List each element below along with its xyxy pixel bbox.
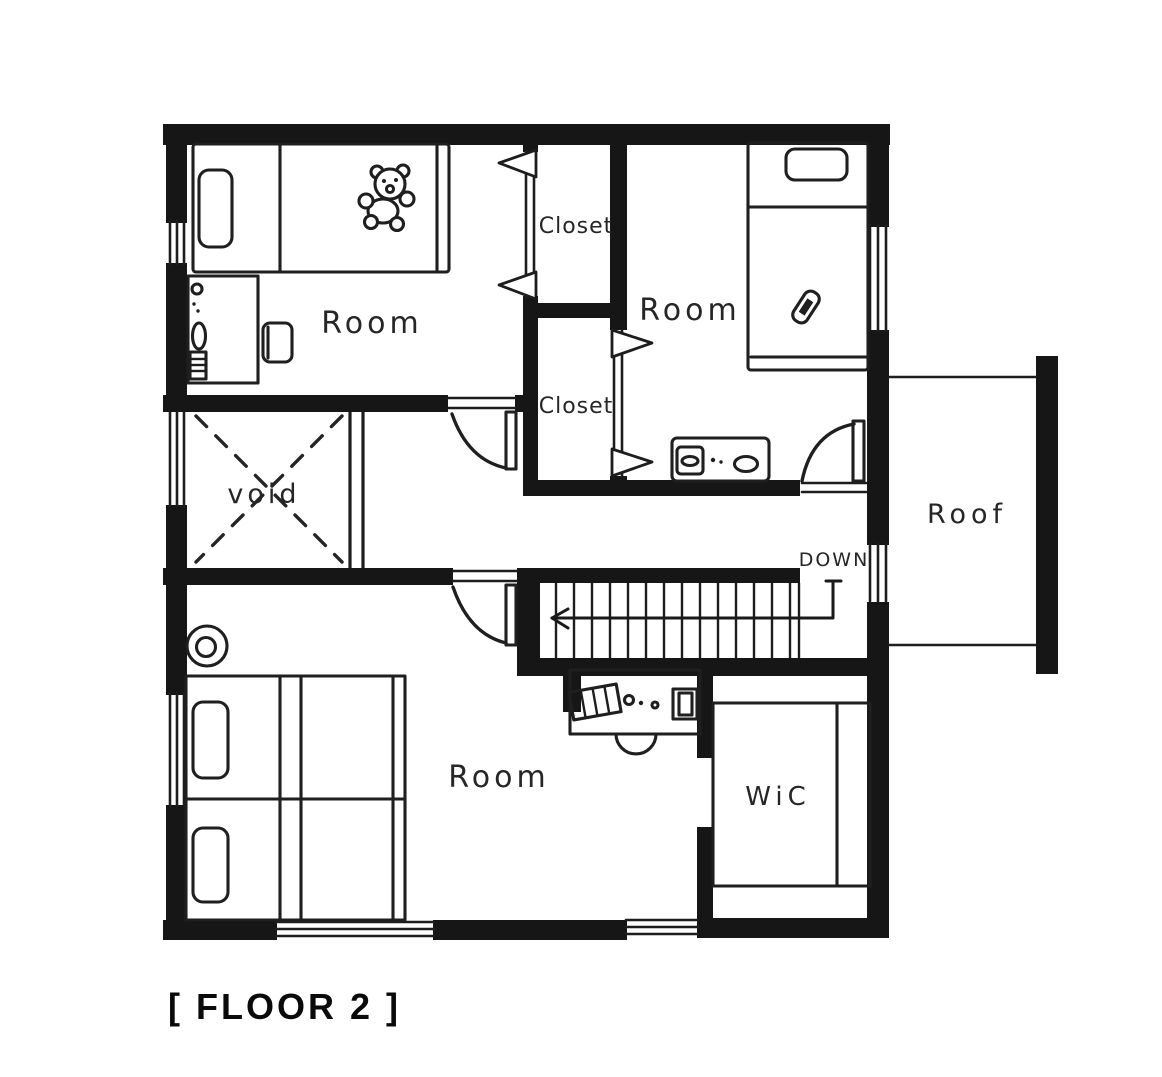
phone-icon bbox=[790, 288, 822, 325]
window-icon bbox=[276, 922, 434, 936]
door-icon-room-top-right bbox=[802, 421, 866, 492]
window-icon bbox=[170, 693, 184, 806]
window-icon bbox=[870, 225, 886, 331]
pillow-icon bbox=[193, 702, 228, 778]
window-icon bbox=[626, 920, 698, 934]
stairs-icon bbox=[552, 581, 841, 658]
door-icon-room-top-left bbox=[448, 398, 516, 469]
pillow-icon bbox=[193, 828, 228, 902]
wall-right bbox=[867, 124, 889, 227]
floor-title: [ FLOOR 2 ] bbox=[168, 986, 401, 1028]
furniture-room-bottom bbox=[186, 626, 700, 920]
window-icon bbox=[870, 544, 886, 601]
pillow-icon bbox=[786, 149, 847, 180]
wall-closet2-left bbox=[523, 318, 538, 492]
wall-left bbox=[166, 805, 187, 940]
floor-plan-drawing: Room Room Room Closet Closet void Roof W… bbox=[0, 0, 1162, 1077]
void-label: void bbox=[227, 479, 300, 510]
wall-wic-west bbox=[697, 827, 713, 938]
bed-icon bbox=[748, 143, 868, 370]
roof-edge-bar bbox=[1036, 356, 1058, 674]
furniture-room-top-left bbox=[188, 144, 449, 383]
wall-hall-south bbox=[163, 568, 453, 585]
stairs-down-arrow bbox=[552, 581, 841, 628]
keyboard-icon bbox=[190, 352, 206, 379]
window-icon bbox=[170, 221, 184, 264]
wall-stairs-north bbox=[517, 568, 800, 583]
wall-closet-mid bbox=[523, 303, 627, 318]
door-icon-room-bottom bbox=[453, 571, 517, 645]
wall-left bbox=[166, 124, 187, 223]
wall-left bbox=[166, 505, 187, 695]
wall-right bbox=[867, 330, 889, 545]
wall-room1-south bbox=[163, 395, 448, 412]
bed-icon bbox=[193, 144, 449, 272]
room-bottom-label: Room bbox=[448, 760, 549, 795]
desk-icon bbox=[569, 670, 700, 754]
teddy-bear-icon bbox=[359, 165, 414, 231]
wall-left bbox=[166, 263, 187, 403]
closet-top-label: Closet bbox=[539, 214, 614, 239]
wic-label: WiC bbox=[745, 782, 811, 812]
wall-bottom bbox=[433, 920, 627, 940]
floor-plan-page: Room Room Room Closet Closet void Roof W… bbox=[0, 0, 1162, 1077]
room-top-left-label: Room bbox=[321, 306, 422, 341]
double-bed-icon bbox=[186, 676, 405, 920]
wall-stairs-south bbox=[517, 658, 889, 676]
downlight-icon bbox=[187, 626, 227, 666]
mouse-icon bbox=[193, 323, 206, 349]
wall-bottom bbox=[163, 920, 277, 940]
mouse-icon bbox=[625, 696, 634, 705]
roof-label: Roof bbox=[927, 499, 1007, 530]
void-railing bbox=[350, 412, 363, 568]
wall-stub bbox=[610, 318, 627, 330]
window-icon bbox=[170, 412, 184, 506]
pillow-icon bbox=[199, 170, 232, 247]
sliding-door-icon-closet-bottom bbox=[612, 330, 652, 476]
wall-bottom-wic bbox=[697, 918, 889, 938]
monitor-icon bbox=[673, 689, 697, 719]
chair-icon bbox=[616, 734, 656, 754]
sliding-door-icon-closet-top bbox=[499, 150, 536, 299]
walls-group bbox=[163, 124, 1058, 940]
dresser-icon bbox=[672, 438, 769, 481]
desk-icon bbox=[188, 276, 258, 383]
stairs-down-label: DOWN bbox=[799, 549, 870, 571]
room-top-right-label: Room bbox=[639, 293, 740, 328]
chair-icon bbox=[263, 323, 292, 362]
closet-bottom-label: Closet bbox=[539, 394, 614, 419]
